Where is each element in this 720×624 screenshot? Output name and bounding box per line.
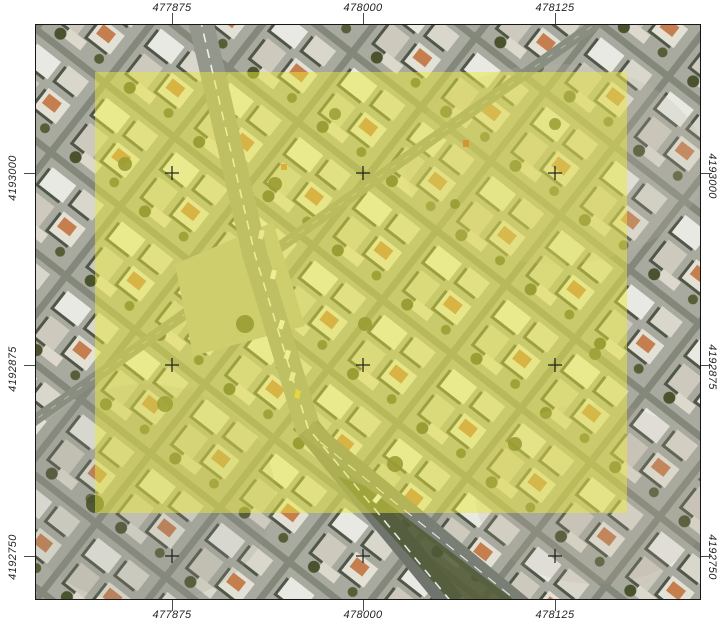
tick-left-0 [24, 173, 35, 174]
grid-label-right-0: 4193000 [706, 153, 718, 199]
tick-bottom-2 [555, 600, 556, 611]
grid-label-left-1: 4192875 [7, 346, 19, 392]
tick-bottom-0 [172, 600, 173, 611]
tick-bottom-1 [363, 600, 364, 611]
tick-left-1 [24, 365, 35, 366]
tick-top-1 [363, 13, 364, 24]
tick-top-2 [555, 13, 556, 24]
tick-top-0 [172, 13, 173, 24]
grid-label-right-1: 4192875 [706, 344, 718, 390]
map-viewport[interactable] [35, 24, 701, 600]
grid-label-left-0: 4193000 [7, 155, 19, 201]
map-layout-page: 477875 478000 478125 477875 478000 47812… [0, 0, 720, 624]
grid-label-right-2: 4192750 [706, 534, 718, 580]
grid-label-left-2: 4192750 [7, 534, 19, 580]
tick-right-1 [701, 365, 712, 366]
tick-left-2 [24, 556, 35, 557]
tick-right-0 [701, 173, 712, 174]
tick-right-2 [701, 556, 712, 557]
selection-overlay [95, 72, 627, 513]
